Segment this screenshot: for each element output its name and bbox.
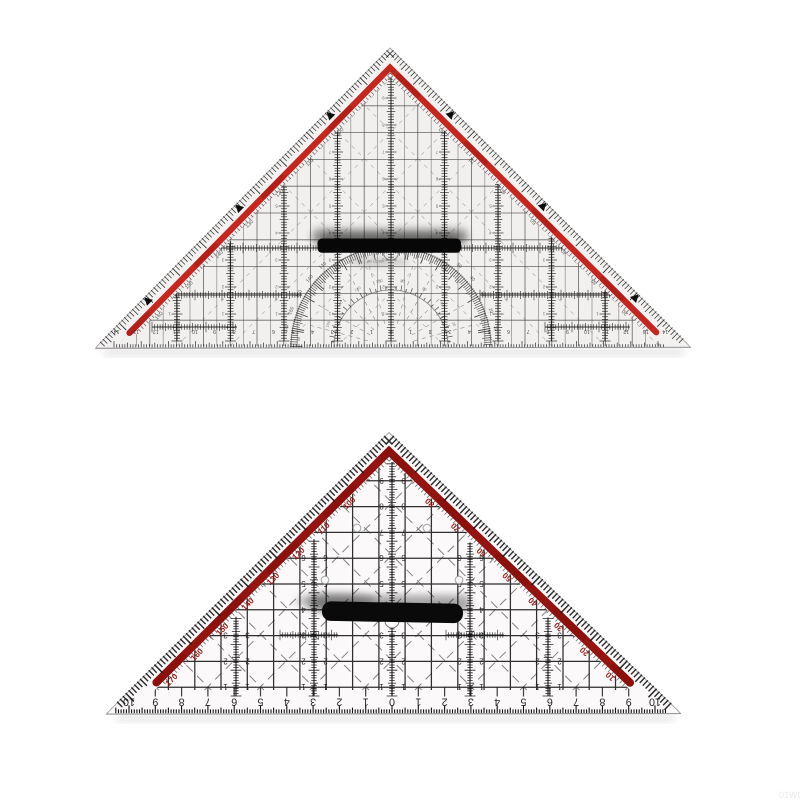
svg-text:5: 5 [487, 328, 490, 334]
svg-text:10: 10 [192, 328, 198, 334]
svg-text:2: 2 [429, 328, 432, 334]
svg-text:11: 11 [604, 328, 609, 334]
svg-text:9: 9 [566, 328, 569, 334]
svg-text:10: 10 [584, 328, 590, 334]
svg-text:3: 3 [331, 328, 334, 334]
svg-text:8: 8 [546, 328, 549, 334]
svg-text:0: 0 [389, 328, 392, 334]
svg-text:6: 6 [507, 328, 510, 334]
svg-text:6: 6 [272, 328, 275, 334]
svg-text:7: 7 [252, 328, 255, 334]
svg-text:4: 4 [311, 328, 314, 334]
svg-text:13: 13 [133, 328, 139, 334]
svg-text:3: 3 [448, 328, 451, 334]
svg-text:1: 1 [409, 328, 412, 334]
svg-text:12: 12 [153, 328, 159, 334]
svg-text:2: 2 [350, 328, 353, 334]
svg-text:1: 1 [370, 328, 373, 334]
svg-text:35 07 60: 35 07 60 [366, 259, 382, 264]
svg-text:7: 7 [527, 328, 530, 334]
svg-text:12: 12 [623, 328, 629, 334]
svg-text:4: 4 [468, 328, 471, 334]
svg-text:11: 11 [173, 328, 178, 334]
svg-text:9: 9 [213, 328, 216, 334]
svg-text:5: 5 [291, 328, 294, 334]
svg-text:8: 8 [233, 328, 236, 334]
svg-text:01WC: 01WC [779, 790, 800, 800]
